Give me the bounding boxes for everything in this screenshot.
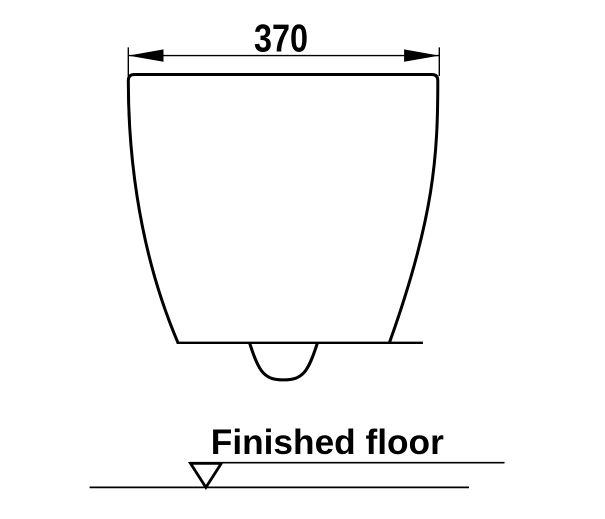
svg-text:Finished floor: Finished floor <box>211 423 444 462</box>
svg-text:370: 370 <box>254 18 308 61</box>
